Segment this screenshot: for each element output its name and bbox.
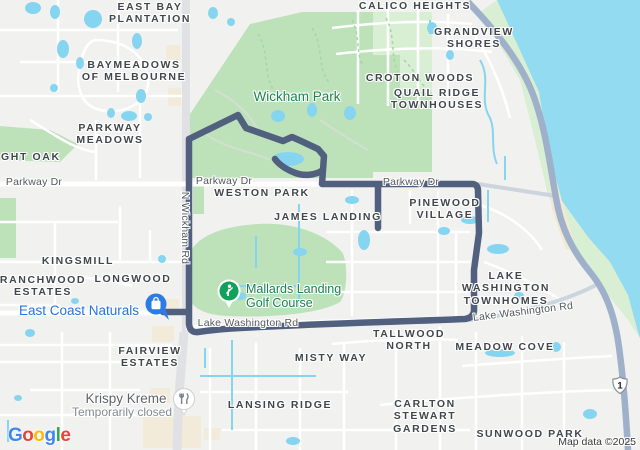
label-parkway-dr-west: Parkway Dr: [6, 176, 62, 188]
label-night-oak: NIGHT OAK: [0, 151, 61, 163]
google-logo[interactable]: Google: [8, 425, 70, 447]
label-krispy-kreme-closed: Temporarily closed: [72, 405, 172, 419]
map-canvas[interactable]: EAST BAYPLANTATIONCALICO HEIGHTSGRANDVIE…: [0, 0, 640, 450]
shield-number: 1: [617, 381, 623, 392]
label-mallards-landing-golf-course[interactable]: Mallards LandingGolf Course: [246, 282, 341, 310]
label-wickham-park[interactable]: Wickham Park: [253, 89, 340, 105]
google-logo-letter: g: [45, 425, 56, 446]
label-parkway-meadows: PARKWAYMEADOWS: [76, 122, 143, 147]
label-tallwood-north: TALLWOODNORTH: [373, 328, 445, 353]
label-croton-woods: CROTON WOODS: [366, 72, 474, 84]
label-baymeadows-of-melbourne: BAYMEADOWSOF MELBOURNE: [82, 59, 186, 84]
label-weston-park: WESTON PARK: [214, 187, 309, 199]
label-east-coast-naturals[interactable]: East Coast Naturals: [19, 303, 139, 319]
label-pinewood-village: PINEWOODVILLAGE: [409, 197, 480, 222]
label-parkway-dr-east: Parkway Dr: [383, 176, 439, 188]
google-logo-letter: o: [22, 425, 33, 446]
label-misty-way: MISTY WAY: [295, 352, 367, 364]
label-kingsmill: KINGSMILL: [42, 255, 114, 267]
google-logo-letter: o: [33, 425, 44, 446]
label-grandview-shores: GRANDVIEWSHORES: [434, 26, 514, 51]
google-logo-letter: G: [8, 425, 22, 446]
map-attribution: Map data ©2025: [558, 436, 636, 448]
label-james-landing: JAMES LANDING: [274, 211, 382, 223]
label-meadow-cove: MEADOW COVE: [455, 341, 554, 353]
label-layer: EAST BAYPLANTATIONCALICO HEIGHTSGRANDVIE…: [0, 0, 640, 450]
label-carlton-stewart-gardens: CARLTONSTEWARTGARDENS: [393, 398, 457, 435]
pin-body: [174, 389, 195, 410]
label-lake-washington-townhomes: LAKEWASHINGTONTOWNHOMES: [462, 270, 550, 307]
label-quail-ridge-townhouses: QUAIL RIDGETOWNHOUSES: [391, 87, 483, 112]
label-fairview-estates: FAIRVIEWESTATES: [118, 345, 181, 370]
label-lansing-ridge: LANSING RIDGE: [228, 399, 332, 411]
google-logo-letter: e: [60, 425, 70, 446]
label-east-bay-plantation: EAST BAYPLANTATION: [109, 1, 191, 26]
label-parkway-dr-mid: Parkway Dr: [196, 175, 252, 187]
label-ranchwood-estates: RANCHWOODESTATES: [0, 274, 86, 299]
label-longwood: LONGWOOD: [95, 273, 172, 285]
label-lake-washington-rd-west: Lake Washington Rd: [198, 317, 299, 329]
label-n-wickham-rd: N Wickham Rd: [179, 192, 191, 264]
label-calico-heights: CALICO HEIGHTS: [359, 0, 471, 12]
